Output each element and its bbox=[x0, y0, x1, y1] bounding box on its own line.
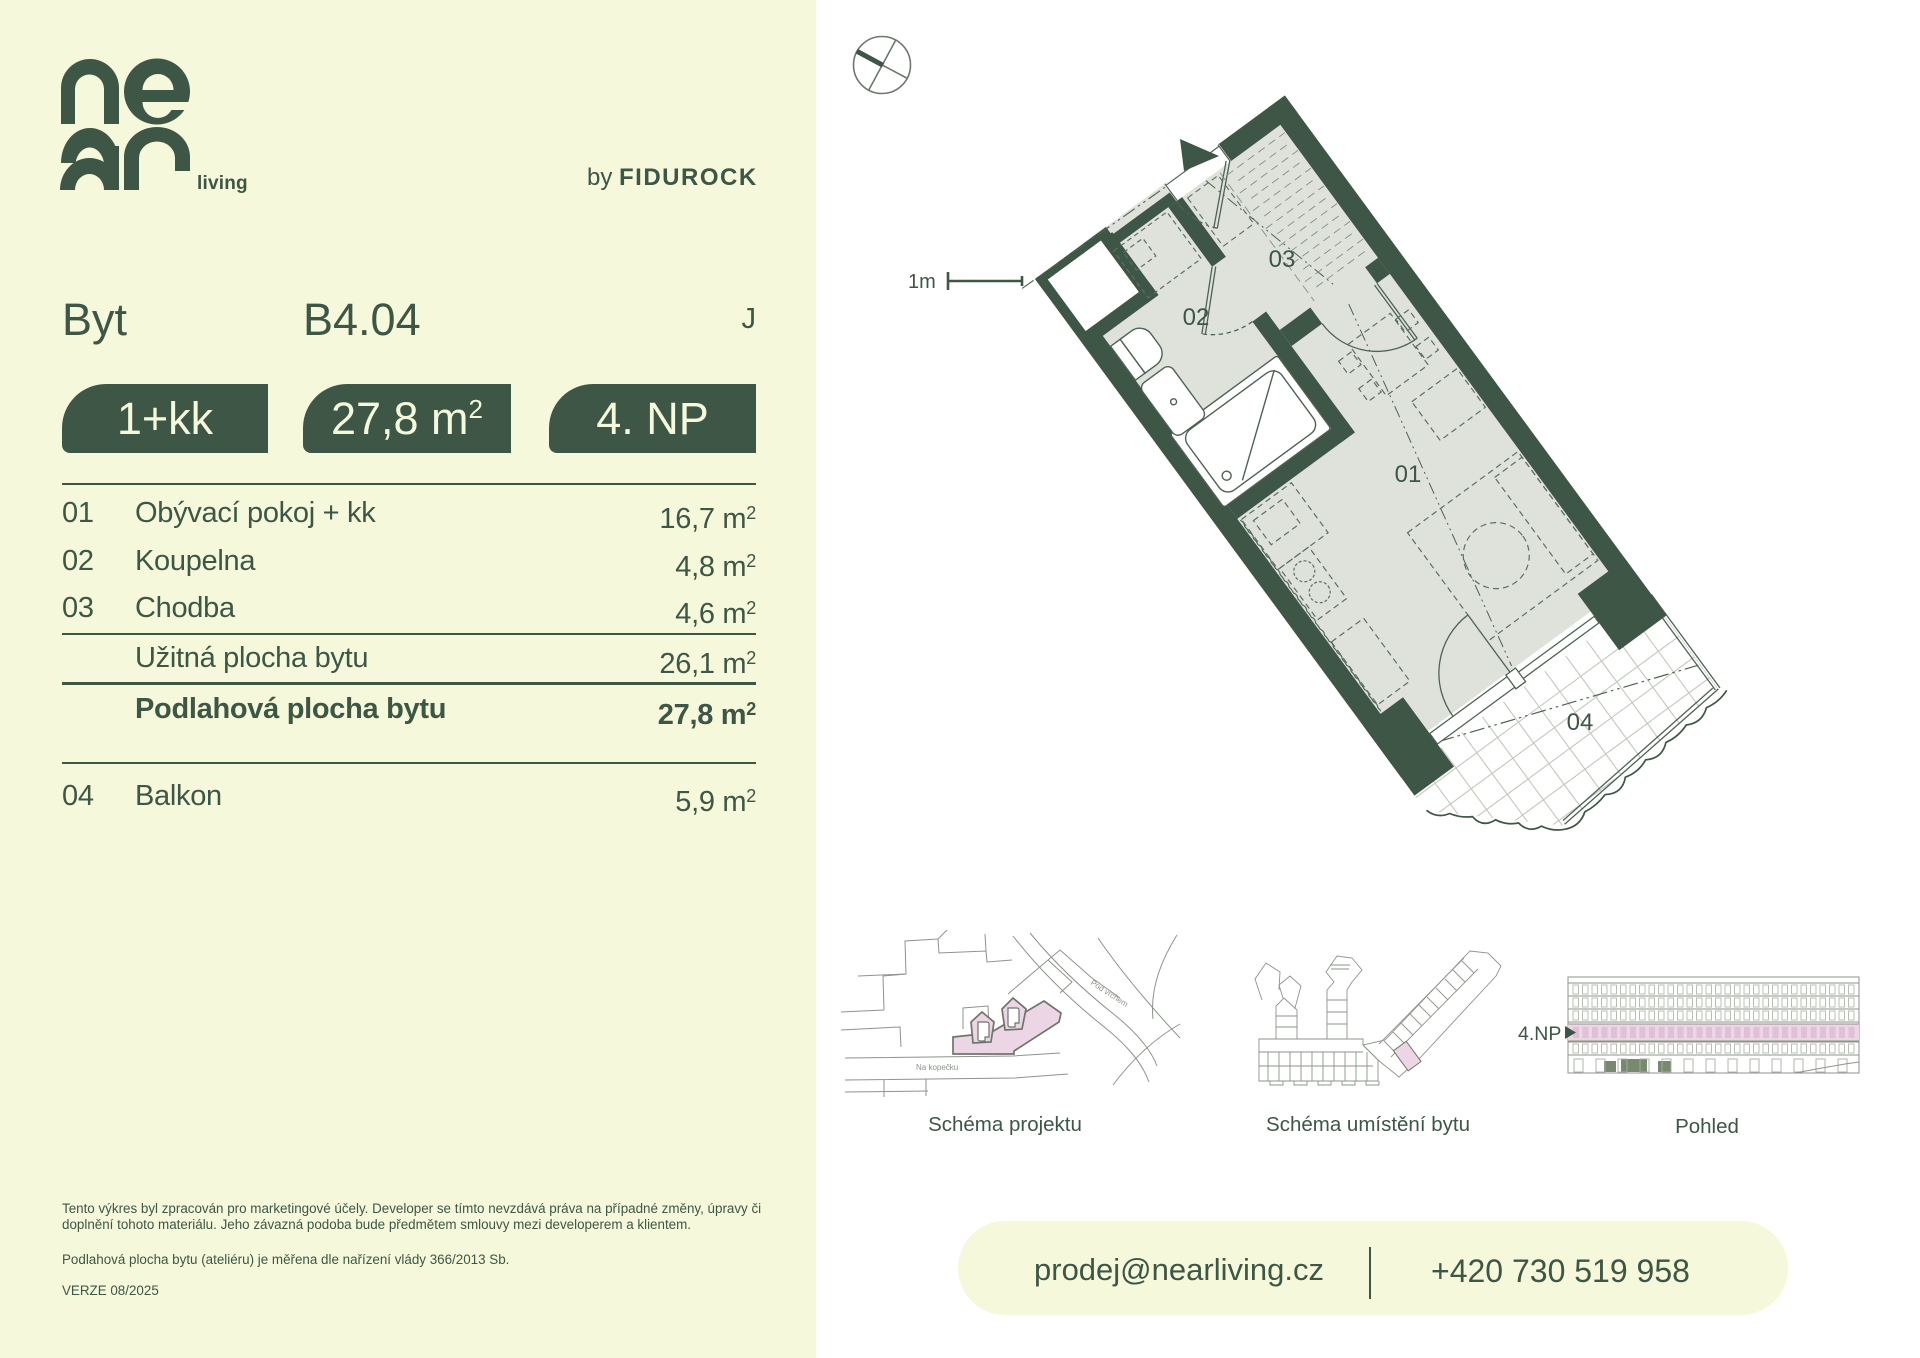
svg-text:Schéma projektu: Schéma projektu bbox=[928, 1113, 1082, 1136]
svg-text:02: 02 bbox=[1183, 304, 1210, 331]
svg-text:Pohled: Pohled bbox=[1675, 1115, 1739, 1138]
svg-text:Na kopečku: Na kopečku bbox=[916, 1063, 958, 1072]
svg-text:1m: 1m bbox=[908, 271, 936, 293]
svg-text:01: 01 bbox=[1395, 461, 1422, 488]
svg-text:03: 03 bbox=[1269, 246, 1296, 273]
svg-text:Pod vrchem: Pod vrchem bbox=[1089, 978, 1130, 1009]
svg-text:Schéma umístění bytu: Schéma umístění bytu bbox=[1266, 1113, 1470, 1136]
svg-text:4.NP: 4.NP bbox=[1518, 1023, 1561, 1045]
svg-text:04: 04 bbox=[1567, 709, 1594, 736]
